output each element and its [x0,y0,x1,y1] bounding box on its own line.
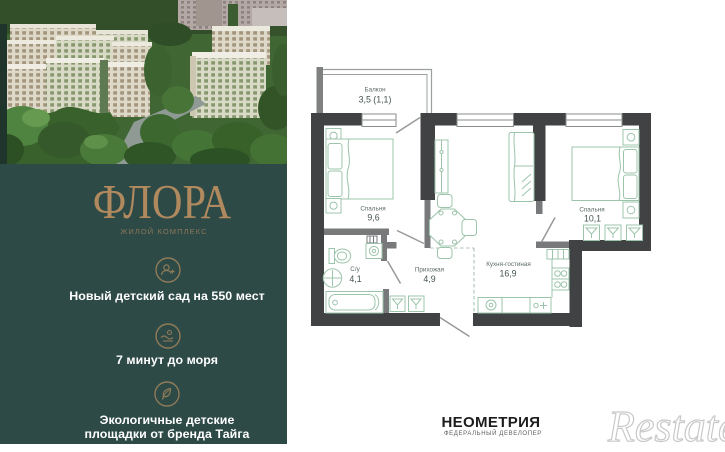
svg-text:4,1: 4,1 [349,274,361,284]
svg-text:3,5 (1,1): 3,5 (1,1) [359,95,392,105]
svg-text:Спальня: Спальня [579,207,604,214]
svg-text:С/у: С/у [350,266,360,273]
svg-text:10,1: 10,1 [584,214,601,224]
svg-text:9,6: 9,6 [367,213,379,223]
svg-text:Прихожая: Прихожая [415,267,444,274]
svg-text:4,9: 4,9 [423,274,435,284]
svg-text:Спальня: Спальня [360,206,385,213]
svg-text:Балкон: Балкон [364,87,386,94]
svg-text:Кухня-гостиная: Кухня-гостиная [486,261,531,268]
svg-text:16,9: 16,9 [499,269,516,279]
